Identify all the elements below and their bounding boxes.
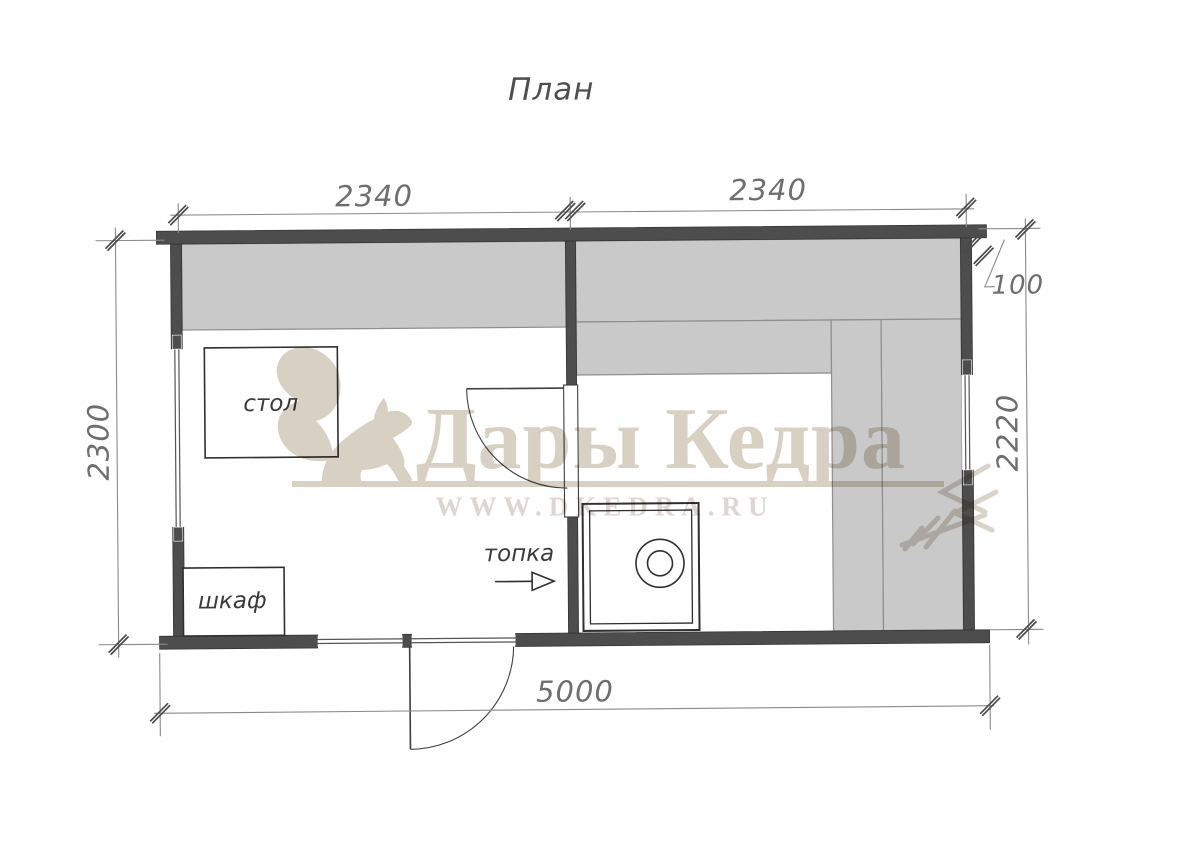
window-jamb [962,360,971,375]
entrance-door-swing-arc [410,646,515,749]
stove [583,503,700,631]
interior-door-leaf [467,388,564,389]
wall-middle-upper [565,241,576,385]
wall-bottom-left [160,635,318,649]
scanned-drawing: План 2340 2340 100 2300 2220 5000 стол ш… [0,0,1200,848]
stove-chimney-inner [647,551,672,576]
drawing-title: План [508,74,595,106]
sauna-bench-step [831,320,883,631]
cabinet-label: шкаф [198,590,267,614]
dim-top-left: 2340 [335,182,413,212]
entrance-door [410,634,517,749]
interior-door-swing-arc [467,388,568,489]
window-bottom [318,635,403,647]
restroom-bed [181,241,566,330]
entrance-door-leaf [410,647,411,749]
dim-left: 2300 [84,403,114,481]
dim-bottom: 5000 [536,677,614,707]
window-right [961,360,973,485]
table-label: стол [243,393,298,416]
wall-right-lower [962,470,974,630]
window-jamb [172,335,181,349]
dim-right: 2220 [993,394,1023,472]
wall-middle-lower [568,517,579,633]
window-left [171,335,184,541]
window-jamb [963,470,972,485]
wall-bottom-jamb [403,634,412,647]
sauna-bench-mid [576,320,831,375]
wall-bottom-right [516,630,990,647]
floor-plan-sheet: План 2340 2340 100 2300 2220 5000 стол ш… [0,0,1200,848]
sauna-bench-side [881,319,963,631]
sauna-bench-top [575,238,961,322]
window-jamb [174,527,183,541]
dim-top-right: 2340 [729,176,807,206]
stove-feed-label: топка [484,543,555,567]
wall-right-upper [960,238,972,375]
interior-door [467,385,579,518]
dim-wall-thickness: 100 [991,272,1044,298]
wall-left-upper [170,244,182,349]
stove-feed-arrow [495,572,554,590]
dim-line-left [115,228,118,658]
